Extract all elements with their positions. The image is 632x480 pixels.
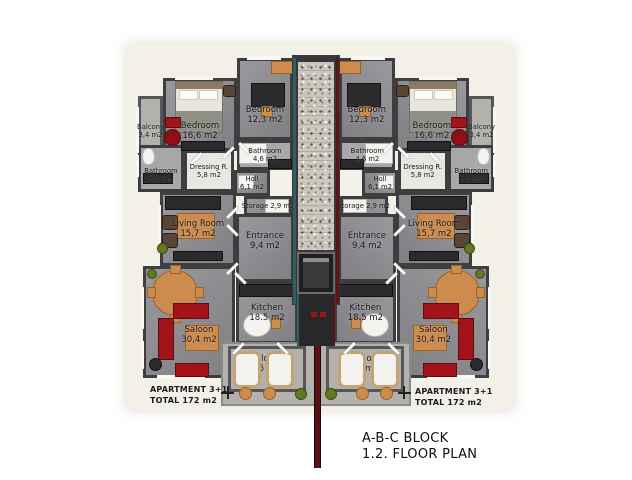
room-label: Kitchen18.5 m2: [249, 303, 284, 323]
kitchen-counter: [239, 284, 297, 297]
core-corridor: [299, 294, 333, 346]
room-label: Kitchen18.5 m2: [347, 303, 382, 323]
lounge-chair: [338, 351, 366, 388]
room-label: Living Room15,7 m2: [408, 219, 460, 239]
lounge-chair: [371, 351, 399, 388]
block-name: A-B-C BLOCK: [362, 431, 477, 447]
red-sofa: [423, 303, 459, 319]
window: [493, 155, 496, 177]
dining-chair: [451, 265, 462, 274]
plant: [475, 269, 485, 279]
room-label: Bathroom5,2 m2: [454, 167, 487, 183]
lounge-chair: [233, 351, 261, 388]
desk: [251, 83, 285, 107]
dining-chair: [147, 287, 156, 298]
room-label: Holl6,1 m2: [240, 175, 264, 191]
window: [419, 76, 457, 80]
red-pouf: [451, 129, 468, 146]
red-accent-line: [336, 58, 339, 304]
section-axis-line: [314, 346, 321, 468]
desk: [347, 83, 381, 107]
dining-chair: [170, 265, 181, 274]
room-label: Storage 2,9 m2: [242, 202, 295, 210]
room-label: Bathroom4,6 m2: [248, 147, 281, 163]
plant: [147, 269, 157, 279]
room-label: Dressing R.5,8 m2: [404, 163, 442, 179]
window: [351, 56, 385, 60]
shelf: [271, 61, 293, 74]
room-label: Entrance9,4 m2: [348, 231, 386, 251]
terrace-table: [263, 387, 276, 400]
dining-chair: [195, 287, 204, 298]
tv-unit: [173, 251, 223, 261]
elevator: [297, 252, 335, 294]
shelf: [339, 61, 361, 74]
red-sofa: [158, 318, 174, 360]
window: [471, 205, 474, 243]
window: [136, 155, 139, 177]
apartment-type: APARTMENT 3+1: [150, 385, 228, 396]
survey-mark-icon: [398, 386, 411, 399]
room-holl: Holl6,1 m2: [234, 170, 270, 196]
room-entrance: Entrance9,4 m2: [338, 214, 396, 282]
side-table: [470, 358, 483, 371]
room-label: Balcony3,4 m2: [137, 123, 164, 139]
apartment-total: TOTAL 172 m2: [415, 398, 493, 409]
teal-accent-line: [297, 294, 299, 346]
room-dressing: Dressing R.5,8 m2: [184, 150, 234, 192]
toilet: [142, 148, 155, 165]
window: [141, 341, 144, 369]
staircase: [298, 62, 334, 250]
room-label: Bedroom16,6 m2: [413, 121, 451, 141]
room-entrance: Entrance9,4 m2: [236, 214, 294, 282]
floor-plan-page: Balcony3,4 m2 Bedroom16,6 m2 Bedroom12,3…: [0, 0, 632, 480]
room-label: Balcony3,4 m2: [468, 123, 495, 139]
dresser: [407, 141, 451, 151]
side-table: [149, 358, 162, 371]
red-marker: [320, 312, 326, 317]
bed-headboard: [176, 82, 222, 89]
red-sofa: [458, 318, 474, 360]
room-label: Entrance9,4 m2: [246, 231, 284, 251]
window: [158, 205, 161, 243]
window: [175, 76, 213, 80]
apartment-total: TOTAL 172 m2: [150, 396, 228, 407]
bed-headboard: [410, 82, 456, 89]
room-label: Dressing R.5,8 m2: [190, 163, 228, 179]
sofa: [165, 196, 221, 210]
red-accent-line: [333, 294, 335, 346]
red-sofa: [173, 303, 209, 319]
room-label: Bedroom16,6 m2: [181, 121, 219, 141]
room-label: Holl6,1 m2: [368, 175, 392, 191]
chair: [396, 85, 409, 97]
red-bench: [451, 117, 467, 128]
red-pouf: [164, 129, 181, 146]
floor-name: 1.2. FLOOR PLAN: [362, 447, 477, 463]
tv-unit: [409, 251, 459, 261]
window: [488, 287, 491, 329]
terrace-table: [239, 387, 252, 400]
elevator-cab: [303, 258, 329, 288]
red-bench: [165, 117, 181, 128]
red-sofa: [175, 363, 209, 377]
window: [247, 56, 281, 60]
red-marker: [311, 312, 317, 317]
dresser: [181, 141, 225, 151]
apartment-left: Balcony3,4 m2 Bedroom16,6 m2 Bedroom12,3…: [135, 55, 317, 403]
apartment-summary-left: APARTMENT 3+1 TOTAL 172 m2: [150, 385, 228, 407]
dining-chair: [428, 287, 437, 298]
room-label: Living Room15,7 m2: [172, 219, 224, 239]
room-label: Bathroom4,6 m2: [350, 147, 383, 163]
pillow: [179, 90, 198, 100]
room-label: Saloon30,4 m2: [415, 325, 450, 345]
room-label: Storage 2,9 m2: [338, 202, 391, 210]
room-label: Bedroom12,3 m2: [348, 105, 386, 125]
apartment-type: APARTMENT 3+1: [415, 387, 493, 398]
red-sofa: [423, 363, 457, 377]
plant: [295, 388, 307, 400]
teal-accent-line: [293, 58, 296, 304]
plant: [157, 243, 168, 254]
window: [141, 287, 144, 329]
plant: [464, 243, 475, 254]
pillow: [414, 90, 433, 100]
room-label: Bedroom12,3 m2: [246, 105, 284, 125]
room-label: Saloon30,4 m2: [181, 325, 216, 345]
plant: [325, 388, 337, 400]
window: [488, 341, 491, 369]
chair: [223, 85, 236, 97]
sofa: [411, 196, 467, 210]
kitchen-counter: [335, 284, 393, 297]
toilet: [477, 148, 490, 165]
pillow: [434, 90, 453, 100]
apartment-right: Balcony3,4 m2 Bedroom16,6 m2 Bedroom12,3…: [315, 55, 497, 403]
room-label: Bathroom5,2 m2: [144, 167, 177, 183]
terrace-table: [380, 387, 393, 400]
plan-title: A-B-C BLOCK 1.2. FLOOR PLAN: [362, 431, 477, 464]
apartment-summary-right: APARTMENT 3+1 TOTAL 172 m2: [415, 387, 493, 409]
terrace-table: [356, 387, 369, 400]
lounge-chair: [266, 351, 294, 388]
pillow: [199, 90, 218, 100]
dining-chair: [476, 287, 485, 298]
